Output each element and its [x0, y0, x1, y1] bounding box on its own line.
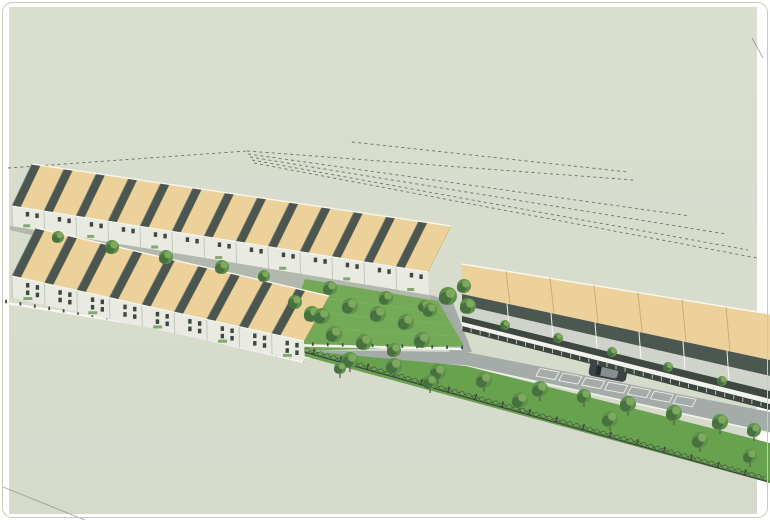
front-hedge: [343, 277, 350, 280]
facade-divider: [140, 226, 141, 247]
facade-window: [295, 343, 298, 348]
tree-canopy-highlight: [721, 377, 726, 382]
facade-window: [90, 222, 93, 227]
tree-canopy-highlight: [436, 365, 444, 373]
tree-canopy-highlight: [263, 271, 269, 277]
tree-canopy-highlight: [332, 327, 340, 335]
tree-canopy-highlight: [748, 450, 755, 457]
tree-canopy-highlight: [420, 333, 428, 341]
facade-window: [227, 244, 230, 249]
wall-post: [5, 300, 7, 303]
facade-window: [36, 293, 39, 298]
facade-divider: [12, 206, 13, 226]
tree-canopy-highlight: [164, 251, 171, 258]
tree-canopy-highlight: [698, 433, 706, 441]
facade-divider: [332, 257, 333, 279]
wall-post: [342, 343, 344, 346]
wall-post: [401, 344, 403, 347]
tree-canopy-highlight: [504, 321, 509, 326]
facade-window: [122, 227, 125, 232]
wall-post: [446, 345, 448, 348]
front-hedge: [151, 246, 158, 249]
facade-divider: [268, 247, 269, 269]
tree-canopy-highlight: [362, 335, 370, 343]
facade-window: [26, 212, 29, 217]
facade-window: [67, 219, 70, 224]
facade-window: [186, 237, 189, 242]
facade-window: [286, 341, 289, 346]
wall-post: [63, 309, 65, 312]
facade-window: [253, 334, 256, 339]
facade-window: [133, 314, 136, 319]
facade-window: [99, 224, 102, 229]
facade-divider: [204, 236, 205, 257]
tree-canopy-highlight: [626, 397, 634, 405]
facade-window: [221, 326, 224, 331]
facade-window: [230, 336, 233, 341]
facade-divider: [396, 267, 397, 290]
facade-window: [165, 314, 168, 319]
facade-window: [419, 274, 422, 279]
wall-post: [312, 342, 314, 345]
wall-post: [461, 346, 463, 349]
tree-canopy-highlight: [57, 232, 63, 238]
facade-window: [410, 273, 413, 278]
facade-window: [36, 285, 39, 290]
facade-window: [263, 336, 266, 341]
facade-window: [26, 283, 29, 288]
facade-window: [35, 213, 38, 218]
facade-window: [263, 343, 266, 348]
facade-divider: [142, 305, 143, 327]
front-hedge: [218, 340, 227, 343]
facade-window: [101, 307, 104, 312]
tree-canopy-highlight: [328, 282, 335, 289]
facade-window: [230, 328, 233, 333]
front-hedge: [283, 354, 292, 357]
facade-window: [91, 297, 94, 302]
facade-window: [286, 348, 289, 353]
facade-window: [378, 268, 381, 273]
tree-canopy-highlight: [582, 390, 589, 397]
facade-window: [58, 290, 61, 295]
facade-window: [188, 319, 191, 324]
facade-window: [355, 264, 358, 269]
facade-window: [123, 312, 126, 317]
facade-window: [198, 321, 201, 326]
facade-divider: [77, 290, 78, 312]
facade-window: [26, 290, 29, 295]
facade-divider: [174, 312, 175, 333]
tree-canopy-highlight: [110, 241, 117, 248]
tree-canopy-highlight: [384, 292, 391, 299]
facade-window: [156, 319, 159, 324]
tree-canopy-highlight: [667, 363, 672, 368]
facade-window: [387, 269, 390, 274]
tree-canopy-highlight: [672, 406, 680, 414]
tree-canopy-highlight: [482, 373, 490, 381]
tree-canopy-highlight: [466, 299, 474, 307]
facade-divider: [12, 276, 13, 298]
wall-post: [20, 302, 22, 305]
facade-divider: [172, 231, 173, 252]
wall-post: [34, 304, 36, 307]
tree-canopy-highlight: [376, 307, 384, 315]
facade-window: [259, 249, 262, 254]
facade-window: [165, 322, 168, 327]
facade-divider: [108, 221, 109, 242]
tree-canopy-highlight: [428, 376, 435, 383]
facade-divider: [76, 216, 77, 236]
site-plan-rendering: [0, 0, 770, 520]
tree-canopy-highlight: [557, 334, 562, 339]
facade-window: [291, 254, 294, 259]
facade-window: [68, 292, 71, 297]
scene-canvas: [0, 0, 770, 520]
facade-divider: [44, 283, 45, 305]
facade-window: [253, 341, 256, 346]
tree-canopy-highlight: [446, 289, 455, 298]
facade-window: [314, 258, 317, 263]
facade-divider: [300, 252, 301, 274]
tree-canopy-highlight: [428, 304, 435, 311]
tree-canopy-highlight: [348, 353, 356, 361]
front-hedge: [153, 325, 162, 328]
tree-canopy-highlight: [293, 296, 300, 303]
facade-window: [58, 217, 61, 222]
facade-window: [218, 242, 221, 247]
facade-window: [250, 247, 253, 252]
front-hedge: [23, 224, 30, 227]
tree-canopy-highlight: [320, 309, 328, 317]
facade-window: [68, 300, 71, 305]
tree-canopy-highlight: [518, 393, 526, 401]
wall-post: [372, 344, 374, 347]
facade-divider: [272, 334, 273, 355]
facade-window: [156, 312, 159, 317]
tree-canopy-highlight: [348, 299, 356, 307]
tree-canopy-highlight: [718, 415, 726, 423]
facade-window: [198, 329, 201, 334]
facade-divider: [236, 242, 237, 264]
wall-post: [431, 345, 433, 348]
front-hedge: [23, 297, 32, 300]
facade-window: [91, 305, 94, 310]
facade-divider: [239, 327, 240, 348]
front-hedge: [215, 256, 222, 259]
tree-canopy-highlight: [608, 412, 616, 420]
facade-window: [133, 307, 136, 312]
front-hedge: [279, 267, 286, 270]
facade-divider: [364, 262, 365, 285]
wall-post: [48, 307, 50, 310]
facade-window: [163, 234, 166, 239]
facade-window: [154, 232, 157, 237]
facade-window: [346, 263, 349, 268]
tree-canopy-highlight: [752, 424, 759, 431]
tree-canopy-highlight: [611, 348, 616, 353]
facade-window: [123, 305, 126, 310]
facade-divider: [207, 319, 208, 340]
facade-window: [295, 350, 298, 355]
tree-canopy-highlight: [220, 261, 227, 268]
tree-canopy-highlight: [404, 315, 412, 323]
tree-canopy-highlight: [392, 344, 399, 351]
front-hedge: [407, 288, 414, 291]
front-hedge: [87, 235, 94, 238]
wall-post: [327, 343, 329, 346]
facade-divider: [44, 211, 45, 231]
tree-canopy-highlight: [392, 359, 400, 367]
facade-window: [131, 229, 134, 234]
front-hedge: [88, 311, 97, 314]
facade-window: [58, 298, 61, 303]
facade-window: [282, 253, 285, 258]
facade-divider: [109, 298, 110, 320]
facade-window: [195, 239, 198, 244]
facade-window: [221, 334, 224, 339]
tree-canopy-highlight: [462, 280, 469, 287]
tree-canopy-highlight: [339, 363, 345, 369]
facade-window: [323, 259, 326, 264]
facade-window: [188, 327, 191, 332]
facade-window: [101, 300, 104, 305]
tree-canopy-highlight: [538, 382, 546, 390]
